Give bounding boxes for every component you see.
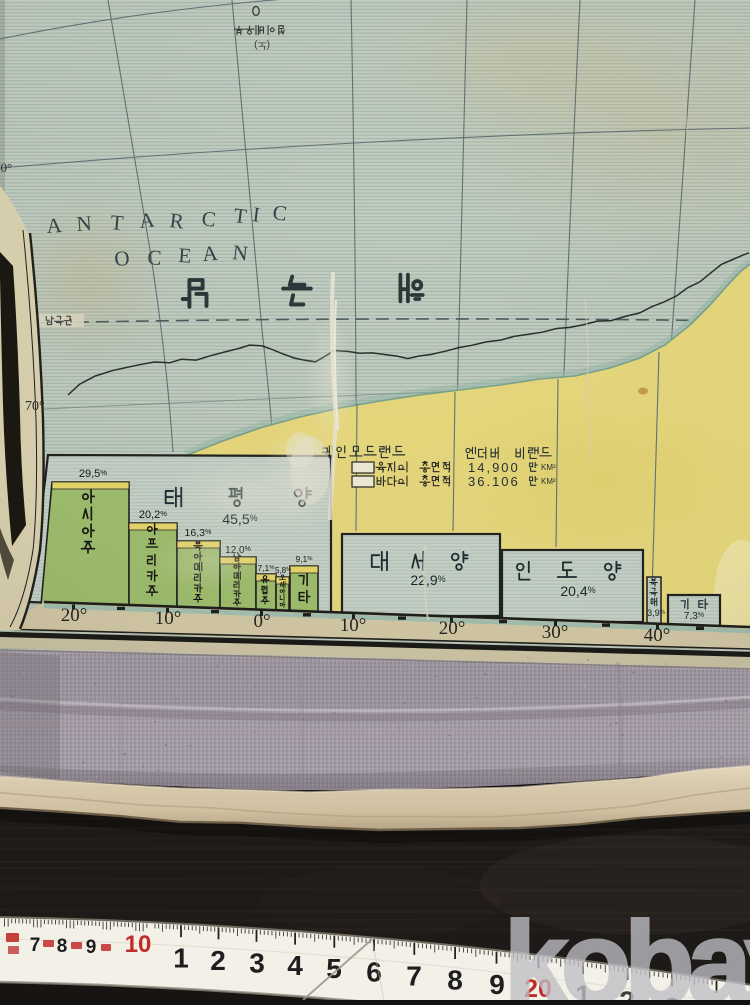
svg-text:7: 7	[30, 935, 41, 956]
svg-text:4: 4	[287, 950, 303, 981]
svg-text:6: 6	[366, 957, 382, 988]
svg-text:1: 1	[173, 943, 189, 974]
svg-text:7: 7	[406, 960, 422, 991]
svg-text:9: 9	[86, 937, 97, 958]
svg-text:8: 8	[447, 965, 463, 996]
svg-text:8: 8	[57, 936, 68, 957]
svg-text:9: 9	[489, 969, 505, 1000]
svg-text:3: 3	[249, 947, 265, 978]
svg-text:kobay: kobay	[504, 899, 750, 1000]
svg-text:10: 10	[125, 931, 152, 958]
svg-text:2: 2	[210, 945, 226, 976]
